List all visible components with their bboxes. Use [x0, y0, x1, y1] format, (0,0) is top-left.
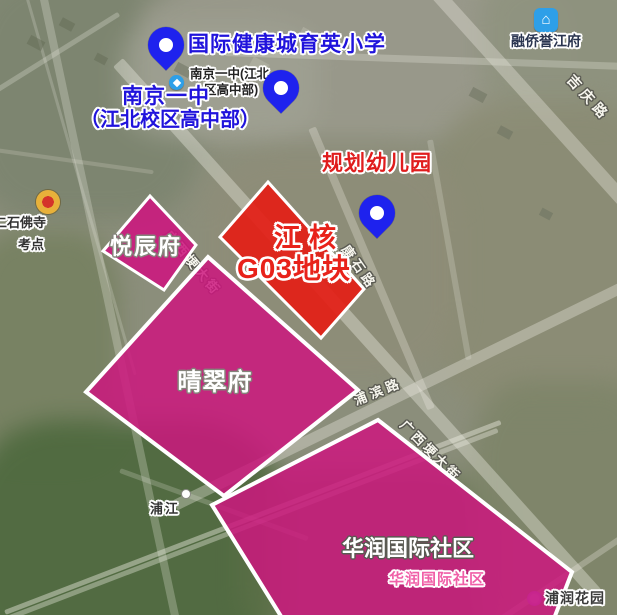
annotation-yizhong-line2: （江北校区高中部）	[80, 110, 260, 130]
annotation-yuying-school: 国际健康城育英小学	[188, 34, 386, 55]
annotation-yizhong-line1: 南京一中	[122, 86, 210, 107]
parcel-overlay	[0, 0, 617, 615]
parcel-label-qingcuifu: 晴翠府	[178, 371, 253, 395]
parcel-label-huarun: 华润国际社区	[342, 538, 474, 560]
poi-label-purun: 浦润花园	[545, 591, 605, 605]
satellite-map: 广西埂大街 广西埂大街 浦滨路 康石路 吉庆路 南京一中(江北 区高中部) ⌂ …	[0, 0, 617, 615]
annotation-kindergarten: 规划幼儿园	[322, 153, 432, 174]
g03-plot-label-line1: 江核	[274, 225, 344, 252]
g03-plot-label-line2: G03地块	[237, 255, 351, 283]
huarun-pink-label: 华润国际社区	[389, 572, 485, 587]
parcel-label-yuechenfu: 悦辰府	[110, 236, 182, 258]
